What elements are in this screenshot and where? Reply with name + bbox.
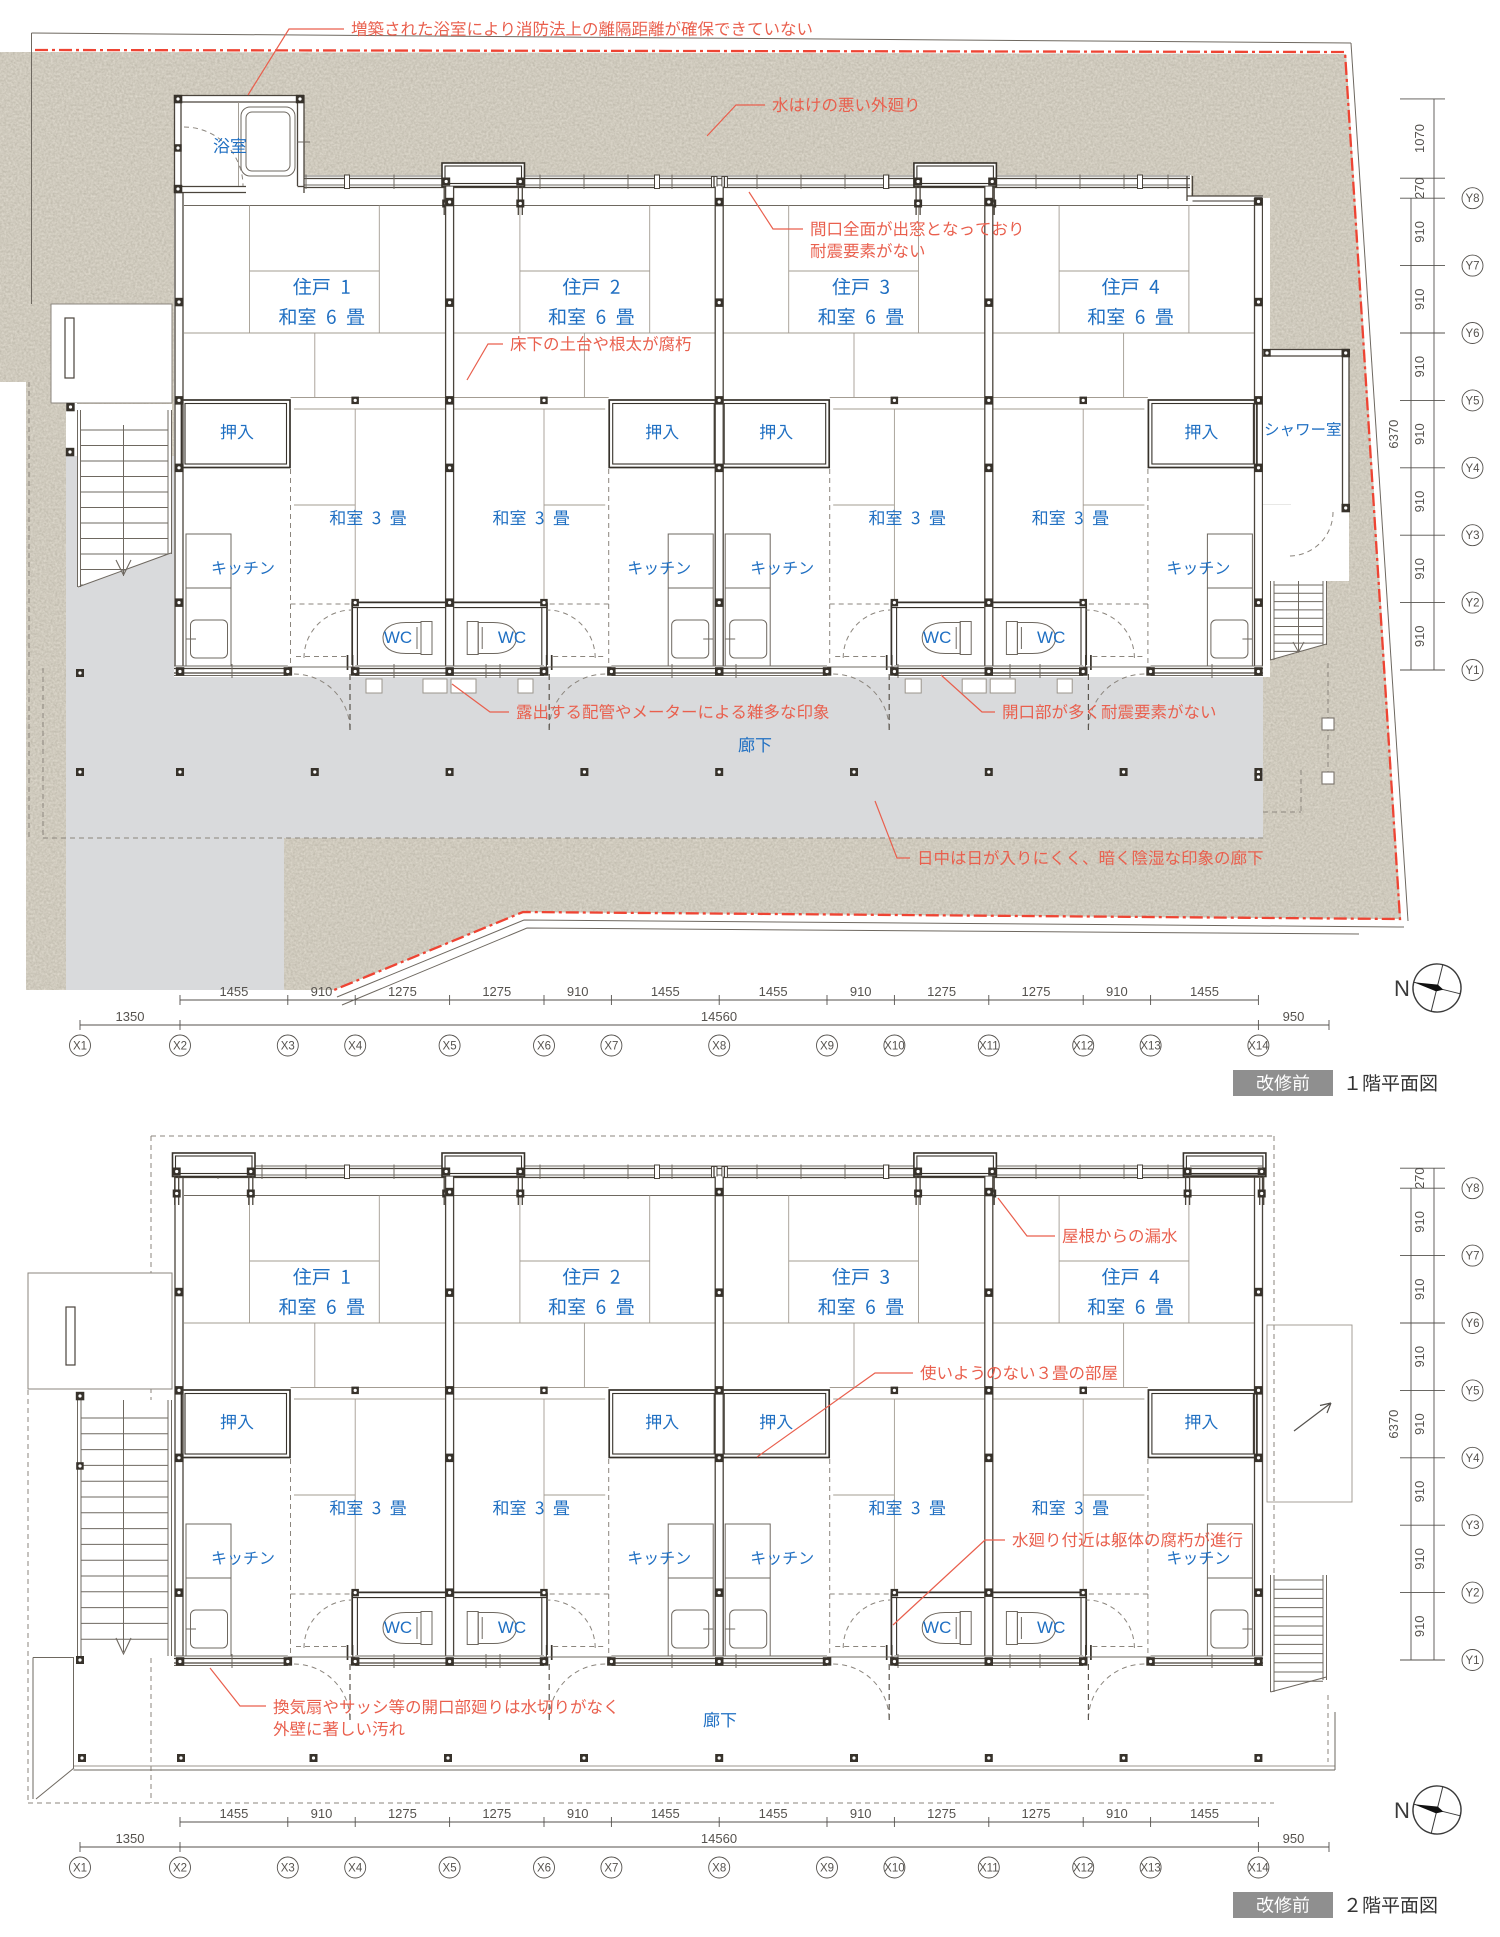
- svg-text:910: 910: [1412, 625, 1427, 647]
- svg-text:X14: X14: [1248, 1041, 1269, 1053]
- svg-text:X4: X4: [348, 1863, 363, 1875]
- svg-text:270: 270: [1412, 177, 1427, 199]
- svg-text:1070: 1070: [1412, 124, 1427, 153]
- svg-text:1455: 1455: [1190, 984, 1219, 999]
- svg-text:Y2: Y2: [1465, 1588, 1479, 1600]
- svg-text:Y3: Y3: [1465, 1520, 1479, 1532]
- svg-text:Y4: Y4: [1465, 1453, 1480, 1465]
- svg-text:WC: WC: [923, 1618, 951, 1637]
- svg-text:1275: 1275: [927, 1806, 956, 1821]
- svg-text:910: 910: [1412, 1211, 1427, 1233]
- svg-text:Y5: Y5: [1465, 1385, 1479, 1397]
- svg-text:910: 910: [1106, 1806, 1128, 1821]
- svg-text:1275: 1275: [1022, 1806, 1051, 1821]
- svg-text:910: 910: [1106, 984, 1128, 999]
- svg-text:X2: X2: [173, 1863, 187, 1875]
- svg-text:N: N: [1394, 976, 1410, 1001]
- svg-text:910: 910: [567, 1806, 589, 1821]
- svg-text:Y6: Y6: [1465, 328, 1479, 340]
- svg-text:X13: X13: [1140, 1041, 1160, 1053]
- svg-text:1275: 1275: [927, 984, 956, 999]
- svg-text:910: 910: [311, 984, 333, 999]
- svg-text:WC: WC: [923, 628, 951, 647]
- svg-text:X11: X11: [979, 1041, 999, 1053]
- svg-text:WC: WC: [1037, 628, 1065, 647]
- svg-text:910: 910: [850, 984, 872, 999]
- svg-text:Y6: Y6: [1465, 1318, 1479, 1330]
- svg-text:X9: X9: [820, 1863, 834, 1875]
- svg-text:X3: X3: [281, 1863, 295, 1875]
- svg-text:1350: 1350: [116, 1831, 145, 1846]
- svg-text:X5: X5: [443, 1863, 457, 1875]
- svg-text:950: 950: [1283, 1009, 1305, 1024]
- svg-text:Y3: Y3: [1465, 530, 1479, 542]
- svg-text:X1: X1: [73, 1863, 87, 1875]
- svg-text:X12: X12: [1073, 1863, 1093, 1875]
- svg-text:1275: 1275: [482, 1806, 511, 1821]
- svg-text:X7: X7: [604, 1041, 618, 1053]
- svg-text:6370: 6370: [1386, 1410, 1401, 1439]
- svg-text:X7: X7: [604, 1863, 618, 1875]
- svg-text:WC: WC: [1037, 1618, 1065, 1637]
- svg-text:X1: X1: [73, 1041, 87, 1053]
- svg-text:910: 910: [1412, 491, 1427, 513]
- svg-text:910: 910: [1412, 1615, 1427, 1637]
- svg-text:910: 910: [1412, 288, 1427, 310]
- svg-text:Y1: Y1: [1465, 665, 1479, 677]
- svg-text:1455: 1455: [651, 1806, 680, 1821]
- svg-text:910: 910: [1412, 423, 1427, 445]
- svg-text:X11: X11: [979, 1863, 999, 1875]
- svg-text:X8: X8: [712, 1863, 726, 1875]
- svg-text:Y7: Y7: [1465, 1251, 1479, 1263]
- svg-text:1455: 1455: [759, 984, 788, 999]
- svg-text:910: 910: [1412, 1481, 1427, 1503]
- svg-text:910: 910: [850, 1806, 872, 1821]
- svg-text:X6: X6: [537, 1863, 551, 1875]
- svg-text:X8: X8: [712, 1041, 726, 1053]
- svg-text:1455: 1455: [1190, 1806, 1219, 1821]
- svg-text:1455: 1455: [219, 1806, 248, 1821]
- svg-text:910: 910: [1412, 1413, 1427, 1435]
- svg-text:Y4: Y4: [1465, 463, 1480, 475]
- svg-text:1350: 1350: [116, 1009, 145, 1024]
- svg-text:1275: 1275: [1022, 984, 1051, 999]
- svg-text:Y7: Y7: [1465, 261, 1479, 273]
- svg-text:6370: 6370: [1386, 420, 1401, 449]
- svg-text:WC: WC: [498, 628, 526, 647]
- svg-text:WC: WC: [498, 1618, 526, 1637]
- svg-text:X5: X5: [443, 1041, 457, 1053]
- svg-text:910: 910: [1412, 558, 1427, 580]
- svg-text:X10: X10: [884, 1041, 904, 1053]
- svg-text:14560: 14560: [701, 1831, 737, 1846]
- svg-text:X13: X13: [1140, 1863, 1160, 1875]
- svg-text:910: 910: [1412, 1278, 1427, 1300]
- svg-text:X4: X4: [348, 1041, 363, 1053]
- svg-text:1455: 1455: [759, 1806, 788, 1821]
- svg-text:Y2: Y2: [1465, 598, 1479, 610]
- svg-text:X3: X3: [281, 1041, 295, 1053]
- svg-text:270: 270: [1412, 1167, 1427, 1189]
- svg-text:N: N: [1394, 1798, 1410, 1823]
- svg-text:910: 910: [1412, 356, 1427, 378]
- svg-text:910: 910: [567, 984, 589, 999]
- svg-text:Y8: Y8: [1465, 193, 1479, 205]
- svg-text:14560: 14560: [701, 1009, 737, 1024]
- svg-text:910: 910: [1412, 221, 1427, 243]
- svg-text:X2: X2: [173, 1041, 187, 1053]
- svg-text:X6: X6: [537, 1041, 551, 1053]
- svg-text:X12: X12: [1073, 1041, 1093, 1053]
- svg-text:950: 950: [1283, 1831, 1305, 1846]
- svg-text:WC: WC: [384, 1618, 412, 1637]
- svg-text:1455: 1455: [219, 984, 248, 999]
- svg-text:910: 910: [311, 1806, 333, 1821]
- svg-text:Y8: Y8: [1465, 1183, 1479, 1195]
- svg-text:X9: X9: [820, 1041, 834, 1053]
- svg-text:Y1: Y1: [1465, 1655, 1479, 1667]
- svg-text:910: 910: [1412, 1346, 1427, 1368]
- svg-text:1275: 1275: [388, 984, 417, 999]
- svg-text:1275: 1275: [482, 984, 511, 999]
- svg-text:X10: X10: [884, 1863, 904, 1875]
- svg-text:1275: 1275: [388, 1806, 417, 1821]
- svg-text:Y5: Y5: [1465, 395, 1479, 407]
- svg-text:X14: X14: [1248, 1863, 1269, 1875]
- svg-text:910: 910: [1412, 1548, 1427, 1570]
- svg-text:1455: 1455: [651, 984, 680, 999]
- svg-text:WC: WC: [384, 628, 412, 647]
